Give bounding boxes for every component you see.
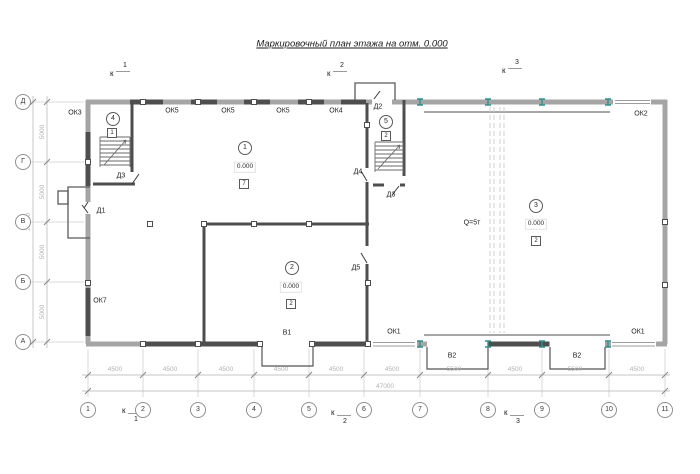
section-mark-3-top: к3 [502, 59, 532, 81]
section-number: 3 [515, 59, 519, 66]
label-door-d5: Д5 [352, 265, 361, 272]
room5-floor-type: 2 [381, 131, 391, 141]
dim-span-v-b: 5000 [40, 245, 47, 259]
axis-column-2: 2 [135, 402, 151, 418]
section-letter: к [504, 409, 508, 417]
dim-span-g-v: 5000 [40, 185, 47, 199]
label-window-ok1-right: ОК1 [631, 329, 644, 336]
section-mark-2-top: к2 [327, 62, 357, 84]
dim-span-d-g: 5000 [40, 125, 47, 139]
section-letter: к [502, 67, 506, 75]
drawing-title: Маркировочный план этажа на отм. 0.000 [256, 39, 447, 50]
gate-leaves [262, 347, 605, 369]
section-mark-3-bottom: к3 [504, 408, 534, 430]
dim-span-6-7: 4500 [385, 367, 399, 374]
dim-span-8-9: 4500 [508, 367, 522, 374]
dim-span-7-8: 5500 [447, 367, 461, 374]
dim-span-3-4: 4500 [219, 367, 233, 374]
label-window-ok1-mid: ОК1 [387, 329, 400, 336]
dim-span-10-11: 4500 [630, 367, 644, 374]
label-window-ok2: ОК2 [634, 111, 647, 118]
room4-floor-type: 1 [107, 128, 117, 138]
axis-column-3: 3 [190, 402, 206, 418]
axis-row-d: Д [15, 94, 31, 110]
dim-span-1-2: 4500 [108, 367, 122, 374]
label-window-ok7: ОК7 [93, 298, 106, 305]
dimension-ticks [30, 99, 668, 394]
axis-column-8: 8 [480, 402, 496, 418]
column-squares [86, 100, 668, 347]
axis-row-g: Г [15, 154, 31, 170]
section-number: 2 [340, 62, 344, 69]
label-gate-v1: В1 [283, 330, 292, 337]
label-gate-v2-b: В2 [573, 353, 582, 360]
room2-floor-type: 2 [286, 299, 296, 309]
label-window-ok5-a: ОК5 [165, 108, 178, 115]
dim-span-5-6: 4500 [329, 367, 343, 374]
dim-span-b-a: 5000 [40, 305, 47, 319]
room2-number: 2 [285, 261, 299, 275]
door-leaves [82, 91, 399, 263]
room2-elevation: 0.000 [280, 282, 302, 293]
wall-openings [85, 98, 656, 348]
section-bar [337, 415, 351, 416]
axis-column-11: 11 [657, 402, 673, 418]
crane-support-beams [417, 99, 611, 347]
dim-span-9-10: 5500 [568, 367, 582, 374]
axis-column-10: 10 [601, 402, 617, 418]
axis-row-a: А [15, 334, 31, 350]
window-glazing-lines [373, 101, 655, 347]
room3-number: 3 [529, 199, 543, 213]
axis-column-1: 1 [80, 402, 96, 418]
section-letter: к [331, 409, 335, 417]
room3-elevation: 0.000 [525, 219, 547, 230]
interior-walls [93, 100, 405, 343]
axis-column-7: 7 [412, 402, 428, 418]
section-number: 2 [343, 418, 347, 425]
label-door-d1: Д1 [97, 208, 106, 215]
section-bar [508, 68, 522, 69]
floor-plan-canvas: Маркировочный план этажа на отм. 0.000 к… [0, 0, 700, 474]
crane-capacity-label: Q=5т [464, 220, 481, 227]
axis-row-v: В [15, 214, 31, 230]
label-door-d2: Д2 [374, 104, 383, 111]
section-letter: к [110, 70, 114, 78]
label-window-ok4: ОК4 [329, 108, 342, 115]
label-window-ok3: ОК3 [68, 110, 81, 117]
label-window-ok5-b: ОК5 [221, 108, 234, 115]
room1-number: 1 [238, 141, 252, 155]
room5-number: 5 [379, 115, 393, 129]
section-bar [510, 415, 524, 416]
section-letter: к [327, 70, 331, 78]
room1-floor-type: 7 [239, 179, 249, 189]
room1-elevation: 0.000 [234, 162, 256, 173]
section-number: 1 [134, 416, 138, 423]
section-mark-1-top: к1 [110, 62, 140, 84]
exterior-walls [86, 100, 667, 344]
dim-total-bottom: 47000 [376, 384, 394, 391]
extension-lines [27, 102, 665, 397]
section-number: 1 [123, 62, 127, 69]
label-door-d3-tr: Д3 [387, 192, 396, 199]
axis-column-9: 9 [534, 402, 550, 418]
crane-hook-path-dashed [490, 107, 504, 333]
room4-number: 4 [106, 112, 120, 126]
section-letter: к [122, 407, 126, 415]
room3-floor-type: 2 [531, 236, 541, 246]
axis-column-4: 4 [246, 402, 262, 418]
section-number: 3 [516, 418, 520, 425]
dim-span-4-5: 4500 [274, 367, 288, 374]
label-door-d3-tl: Д3 [117, 173, 126, 180]
axis-column-5: 5 [301, 402, 317, 418]
label-gate-v2-a: В2 [448, 353, 457, 360]
dim-span-2-3: 4500 [163, 367, 177, 374]
crane-rails [424, 112, 610, 335]
section-bar [333, 71, 347, 72]
section-bar [116, 71, 130, 72]
label-door-d4: Д4 [354, 169, 363, 176]
axis-row-b: Б [15, 274, 31, 290]
axis-column-6: 6 [356, 402, 372, 418]
label-window-ok5-c: ОК5 [276, 108, 289, 115]
